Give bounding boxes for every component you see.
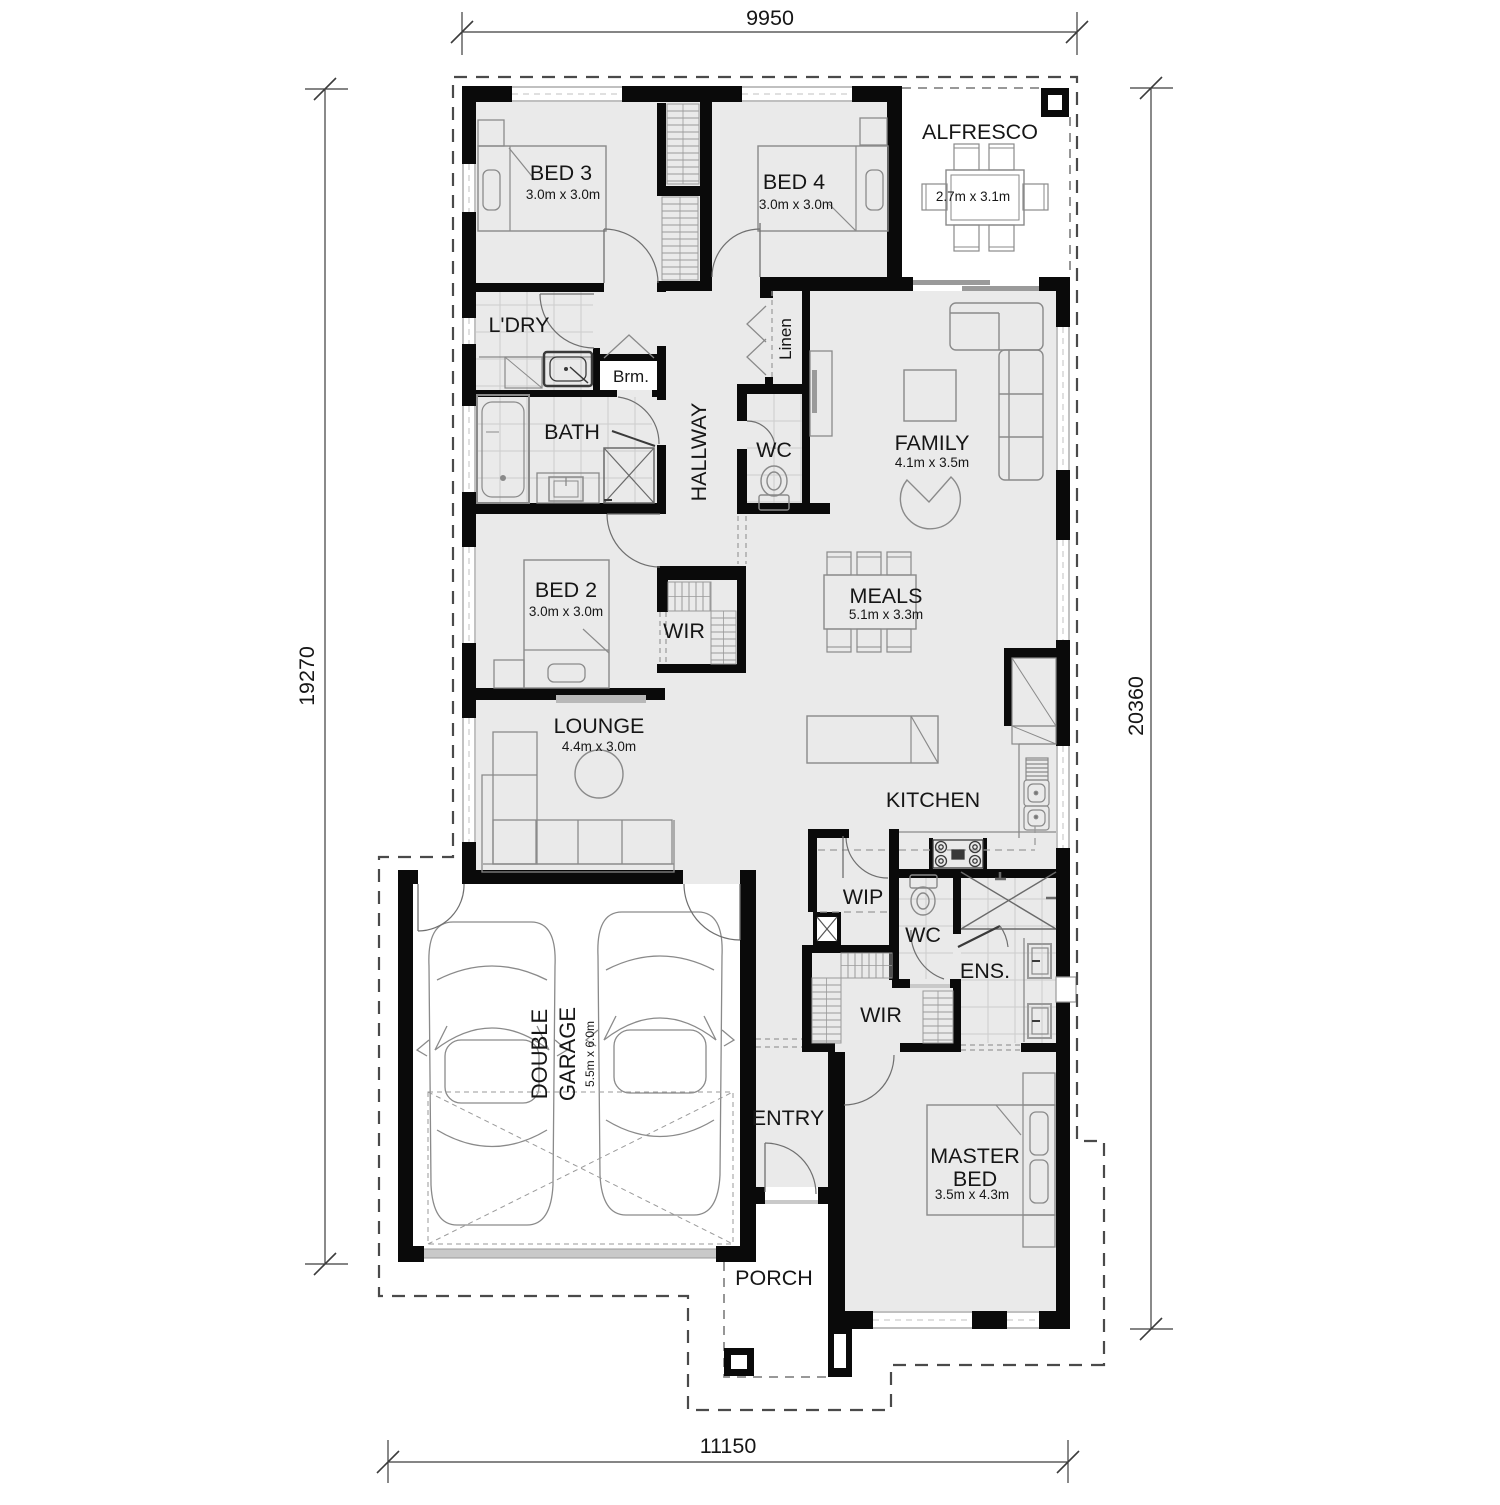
svg-text:WC: WC xyxy=(756,438,792,462)
svg-text:MASTER: MASTER xyxy=(930,1144,1020,1168)
svg-text:2.7m x 3.1m: 2.7m x 3.1m xyxy=(936,189,1010,204)
svg-text:5.1m x 3.3m: 5.1m x 3.3m xyxy=(849,607,923,622)
svg-text:HALLWAY: HALLWAY xyxy=(687,403,711,502)
svg-text:4.1m x 3.5m: 4.1m x 3.5m xyxy=(895,455,969,470)
svg-text:11150: 11150 xyxy=(700,1434,757,1458)
svg-text:ENS.: ENS. xyxy=(960,959,1010,983)
svg-text:L'DRY: L'DRY xyxy=(488,313,549,337)
svg-text:WIR: WIR xyxy=(663,619,705,643)
svg-text:FAMILY: FAMILY xyxy=(895,431,970,455)
svg-text:LOUNGE: LOUNGE xyxy=(554,714,645,738)
svg-text:WIR: WIR xyxy=(860,1003,902,1027)
svg-text:BED 2: BED 2 xyxy=(535,578,597,602)
svg-text:BED 3: BED 3 xyxy=(530,161,592,185)
svg-text:3.0m x 3.0m: 3.0m x 3.0m xyxy=(529,604,603,619)
svg-text:MEALS: MEALS xyxy=(850,584,923,608)
svg-text:9950: 9950 xyxy=(746,6,794,30)
svg-text:KITCHEN: KITCHEN xyxy=(886,788,980,812)
svg-text:ENTRY: ENTRY xyxy=(752,1106,824,1130)
svg-text:WC: WC xyxy=(905,923,941,947)
svg-text:DOUBLE: DOUBLE xyxy=(527,1009,552,1099)
svg-text:3.5m x 4.3m: 3.5m x 4.3m xyxy=(935,1187,1009,1202)
svg-text:ALFRESCO: ALFRESCO xyxy=(922,120,1038,144)
svg-text:3.0m x 3.0m: 3.0m x 3.0m xyxy=(526,187,600,202)
svg-text:BATH: BATH xyxy=(544,420,600,444)
svg-text:Brm.: Brm. xyxy=(613,367,649,386)
svg-text:Linen: Linen xyxy=(776,318,795,360)
svg-text:5.5m x 6.0m: 5.5m x 6.0m xyxy=(583,1021,597,1087)
svg-text:BED 4: BED 4 xyxy=(763,170,825,194)
svg-text:4.4m x 3.0m: 4.4m x 3.0m xyxy=(562,739,636,754)
svg-text:3.0m x 3.0m: 3.0m x 3.0m xyxy=(759,197,833,212)
svg-text:GARAGE: GARAGE xyxy=(555,1007,580,1101)
svg-text:WIP: WIP xyxy=(843,885,884,909)
svg-text:19270: 19270 xyxy=(295,646,319,706)
svg-text:PORCH: PORCH xyxy=(735,1266,813,1290)
svg-text:20360: 20360 xyxy=(1124,676,1148,736)
